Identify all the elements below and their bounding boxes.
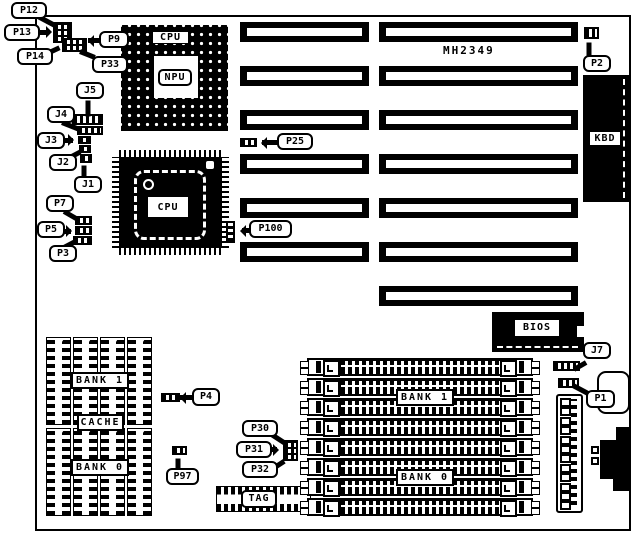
simm-contacts [340,420,515,435]
expansion-slot [379,242,578,262]
simm-post [519,381,524,393]
callout-arrow-p25 [255,137,267,149]
simm-tab [300,388,309,395]
expansion-slot [379,198,578,218]
callout-j2: J2 [49,154,77,171]
simm-tab [531,441,540,448]
simm-post [519,361,524,373]
simm-clip-right [500,440,517,457]
simm-clip-right [500,360,517,377]
simm-post [519,481,524,493]
power-pin [560,417,571,426]
simm-tab [300,408,309,415]
pga-cpu-label: CPU [152,31,189,44]
callout-p31: P31 [236,441,272,458]
cache-chip [46,428,71,516]
simm-tab [531,361,540,368]
kbd-label: KBD [588,130,622,147]
callout-p12: P12 [11,2,47,19]
expansion-slot [240,154,369,174]
callout-j1: J1 [74,176,102,193]
simm-tab [300,468,309,475]
simm-socket [307,358,533,376]
callout-p100: P100 [249,220,292,238]
callout-p13: P13 [4,24,40,41]
expansion-slot [240,198,369,218]
kbd-dashed-line [623,79,625,198]
expansion-slot [379,66,578,86]
simm-sockets [307,358,533,518]
callout-j5: J5 [76,82,104,99]
expansion-slot [379,286,578,306]
callout-arrow-p100 [234,225,246,237]
simm-post [316,401,321,413]
simm-tab [300,441,309,448]
expansion-slot [379,154,578,174]
simm-tab [531,501,540,508]
expansion-slot [240,242,369,262]
npu-label: NPU [158,69,192,86]
simm-tab [300,488,309,495]
simm-tab [531,508,540,515]
simm-clip-right [500,380,517,397]
callout-tail-j5 [86,101,91,117]
simm-post [519,501,524,513]
slot-column-right [379,22,578,330]
power-pin [560,483,571,492]
power-pins [560,398,571,511]
callout-arrow-p13 [46,26,58,38]
simm-post [316,381,321,393]
cache-chip [127,428,152,516]
callout-arrow-p9 [82,35,94,47]
simm-contacts [340,500,515,515]
callout-p32: P32 [242,461,278,478]
callout-p14: P14 [17,48,53,65]
power-pin [560,426,571,435]
simm-contacts [340,440,515,455]
power-pin [560,445,571,454]
qfp-pins-bottom [119,247,222,255]
power-pin-row [571,399,577,505]
simm-tab [531,421,540,428]
simm-tab [531,408,540,415]
callout-p33: P33 [92,56,128,73]
qfp-body: CPU [119,157,222,248]
power-pin [560,464,571,473]
callout-arrow-p5 [66,225,78,237]
simm-post [519,401,524,413]
power-pin [560,492,571,501]
simm-tab [300,481,309,488]
callout-arrow-p31 [273,444,285,456]
din-connector [600,440,631,479]
simm-clip-left [323,420,340,437]
simm-clip-right [500,500,517,517]
callout-p7: P7 [46,195,74,212]
simm-clip-right [500,420,517,437]
callout-p9: P9 [99,31,129,48]
simm-tab [300,361,309,368]
callout-arrow-j3 [68,134,80,146]
simm-tab [300,401,309,408]
power-pin [560,407,571,416]
simm-socket [307,418,533,436]
callout-p4: P4 [192,388,220,406]
power-pin [560,501,571,510]
simm-post [316,501,321,513]
simm-tab [300,508,309,515]
bios-dashed-line [497,346,578,348]
simm-tab [531,428,540,435]
power-pin [560,473,571,482]
power-pin [560,398,571,407]
simm-tab [300,501,309,508]
simm-clip-left [323,500,340,517]
bios-label: BIOS [513,318,561,338]
cache-label: CACHE [77,414,124,431]
callout-arrow-p4 [174,392,186,404]
expansion-slot [240,22,369,42]
simm-tab [531,488,540,495]
jumper-j1 [80,154,92,163]
simm-tab [300,428,309,435]
qfp-pin1-circle [143,179,154,190]
simm-socket [307,498,533,516]
expansion-slot [379,22,578,42]
callout-p1: P1 [586,390,615,408]
cache-chip [46,337,71,425]
simm-tab [531,481,540,488]
simm-post [519,441,524,453]
simm-post [316,441,321,453]
qfp-corner-mark [206,161,214,169]
simm-clip-right [500,400,517,417]
simm-bank1-label: BANK 1 [396,389,454,406]
expansion-slot [379,110,578,130]
power-pin [560,436,571,445]
din-connector [616,427,631,441]
callout-j4: J4 [47,106,75,123]
din-connector [613,478,631,491]
simm-clip-left [323,400,340,417]
simm-post [519,461,524,473]
simm-tab [300,368,309,375]
simm-clip-right [500,460,517,477]
callout-p25: P25 [277,133,313,150]
simm-post [519,421,524,433]
qfp-cpu-chip: CPU [112,150,229,255]
simm-tab [531,448,540,455]
bios-notch [577,326,584,337]
simm-tab [300,421,309,428]
simm-clip-left [323,380,340,397]
qfp-cpu-label: CPU [148,197,188,217]
simm-clip-left [323,480,340,497]
power-connector [556,394,583,513]
simm-tab [300,461,309,468]
cache-chip [127,337,152,425]
simm-tab [531,468,540,475]
simm-bank0-label: BANK 0 [396,469,454,486]
simm-post [316,481,321,493]
expansion-slot [240,110,369,130]
jumper-j4 [77,126,103,135]
jumper-p97 [172,446,187,455]
simm-clip-left [323,360,340,377]
callout-j3: J3 [37,132,65,149]
simm-clip-right [500,480,517,497]
simm-post [316,361,321,373]
callout-p97: P97 [166,468,199,485]
callout-j7: J7 [583,342,611,359]
simm-post [316,461,321,473]
jumper-p2 [584,27,599,39]
power-pin [560,454,571,463]
din-pin [591,457,599,465]
simm-tab [531,368,540,375]
simm-tab [531,381,540,388]
expansion-slot [240,66,369,86]
simm-tab [300,381,309,388]
simm-contacts [340,360,515,375]
simm-clip-left [323,440,340,457]
callout-p2: P2 [583,55,611,72]
simm-post [316,421,321,433]
callout-p3: P3 [49,245,77,262]
cache-bank1-label: BANK 1 [71,372,129,389]
simm-tab [531,461,540,468]
simm-tab [531,401,540,408]
callout-p5: P5 [37,221,65,238]
motherboard-diagram: MH2349 CPU NPU CPU KBD BIOS BANK 1 [0,0,633,535]
simm-tab [300,448,309,455]
slot-column-left [240,22,369,286]
header-p30-p31-p32 [283,440,298,461]
simm-socket [307,438,533,456]
callout-p30: P30 [242,420,278,437]
din-pin [591,446,599,454]
simm-clip-left [323,460,340,477]
simm-tab [531,388,540,395]
cache-bank0-label: BANK 0 [71,459,129,476]
tag-label: TAG [241,490,277,508]
